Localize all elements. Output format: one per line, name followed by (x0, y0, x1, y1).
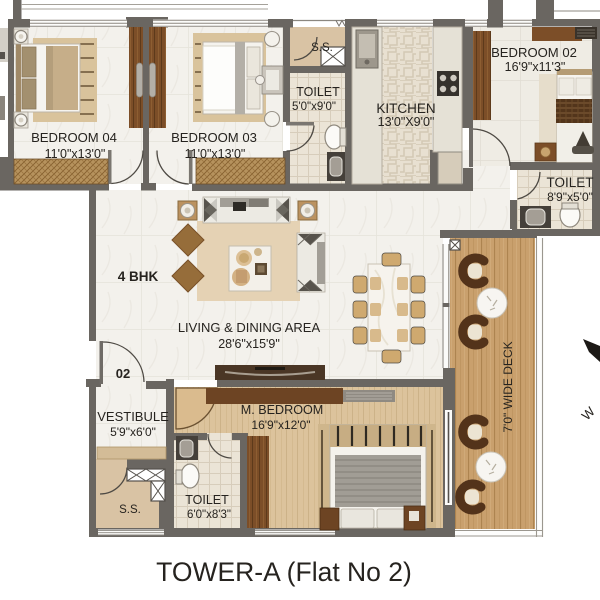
svg-text:16'9"x12'0": 16'9"x12'0" (251, 418, 310, 432)
svg-text:11'0"x13'0": 11'0"x13'0" (185, 147, 246, 161)
svg-text:16'9"x11'3": 16'9"x11'3" (505, 60, 566, 74)
svg-text:11'0"x13'0": 11'0"x13'0" (45, 147, 106, 161)
svg-text:KITCHEN: KITCHEN (376, 101, 435, 116)
svg-text:02: 02 (116, 366, 130, 381)
svg-text:LIVING & DINING AREA: LIVING & DINING AREA (178, 320, 321, 335)
svg-text:28'6"x15'9": 28'6"x15'9" (218, 337, 280, 351)
svg-text:5'9"x6'0": 5'9"x6'0" (110, 425, 156, 439)
svg-text:BEDROOM 02: BEDROOM 02 (491, 45, 577, 60)
svg-text:TOWER-A (Flat No 2): TOWER-A (Flat No 2) (156, 557, 412, 587)
svg-text:6'0"x8'3": 6'0"x8'3" (187, 509, 231, 521)
svg-text:TOILET: TOILET (296, 85, 340, 99)
svg-text:4 BHK: 4 BHK (118, 269, 159, 284)
svg-text:S.S.: S.S. (119, 504, 141, 516)
svg-text:13'0"X9'0": 13'0"X9'0" (378, 115, 435, 129)
svg-text:S.S.: S.S. (311, 42, 333, 54)
svg-text:TOILET: TOILET (185, 493, 229, 507)
svg-text:M. BEDROOM: M. BEDROOM (241, 403, 324, 417)
svg-text:8'9"x5'0": 8'9"x5'0" (547, 190, 593, 204)
svg-text:TOILET: TOILET (546, 175, 593, 190)
svg-text:BEDROOM 03: BEDROOM 03 (171, 130, 257, 145)
svg-text:VESTIBULE: VESTIBULE (97, 409, 169, 424)
svg-text:5'0"x9'0": 5'0"x9'0" (292, 101, 336, 113)
svg-text:BEDROOM 04: BEDROOM 04 (31, 130, 117, 145)
svg-text:7'0" WIDE DECK: 7'0" WIDE DECK (501, 341, 515, 432)
